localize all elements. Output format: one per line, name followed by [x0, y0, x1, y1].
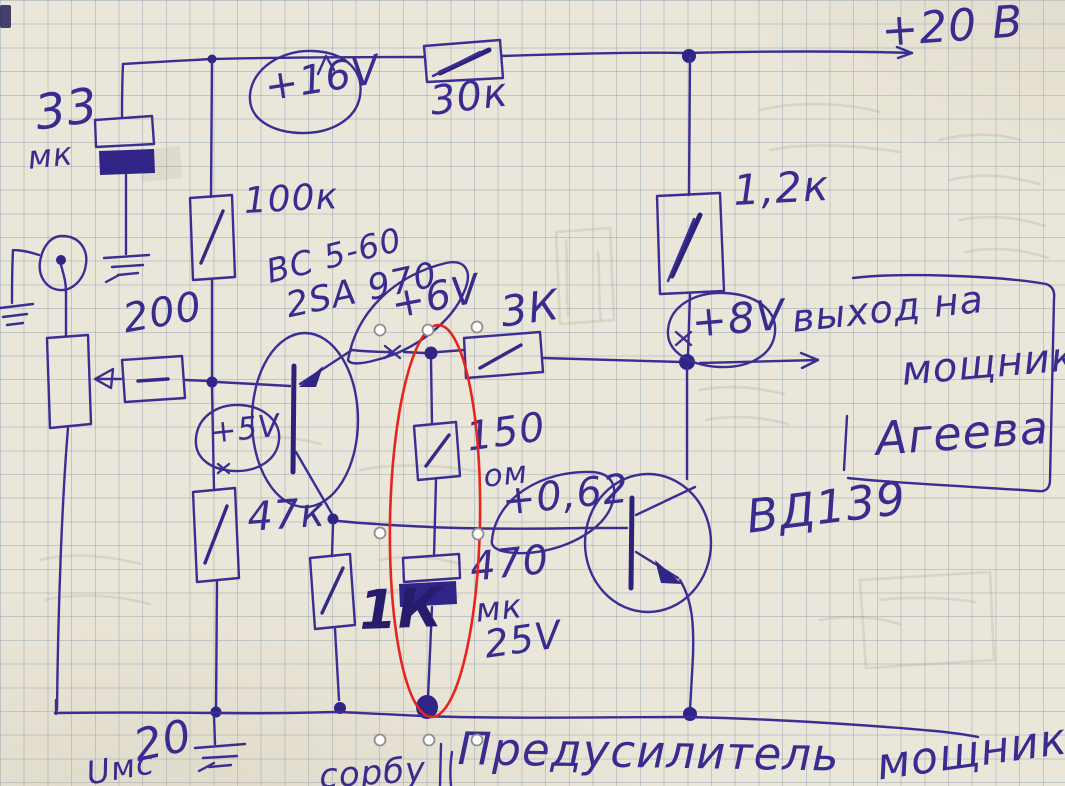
selection-handle[interactable] [375, 735, 386, 746]
selection-handle[interactable] [423, 325, 434, 336]
annotation-overlay [0, 0, 1065, 786]
selection-handle[interactable] [473, 529, 484, 540]
selection-handle[interactable] [424, 735, 435, 746]
selection-handle[interactable] [472, 735, 483, 746]
red-annotation-ellipse[interactable] [387, 324, 484, 718]
notebook-page-photo: +20 В 30к +16V 33 мк 100к 200 BC 5-60 2S… [0, 0, 1065, 786]
selection-handle[interactable] [375, 325, 386, 336]
selection-handle[interactable] [375, 528, 386, 539]
selection-handle[interactable] [472, 322, 483, 333]
